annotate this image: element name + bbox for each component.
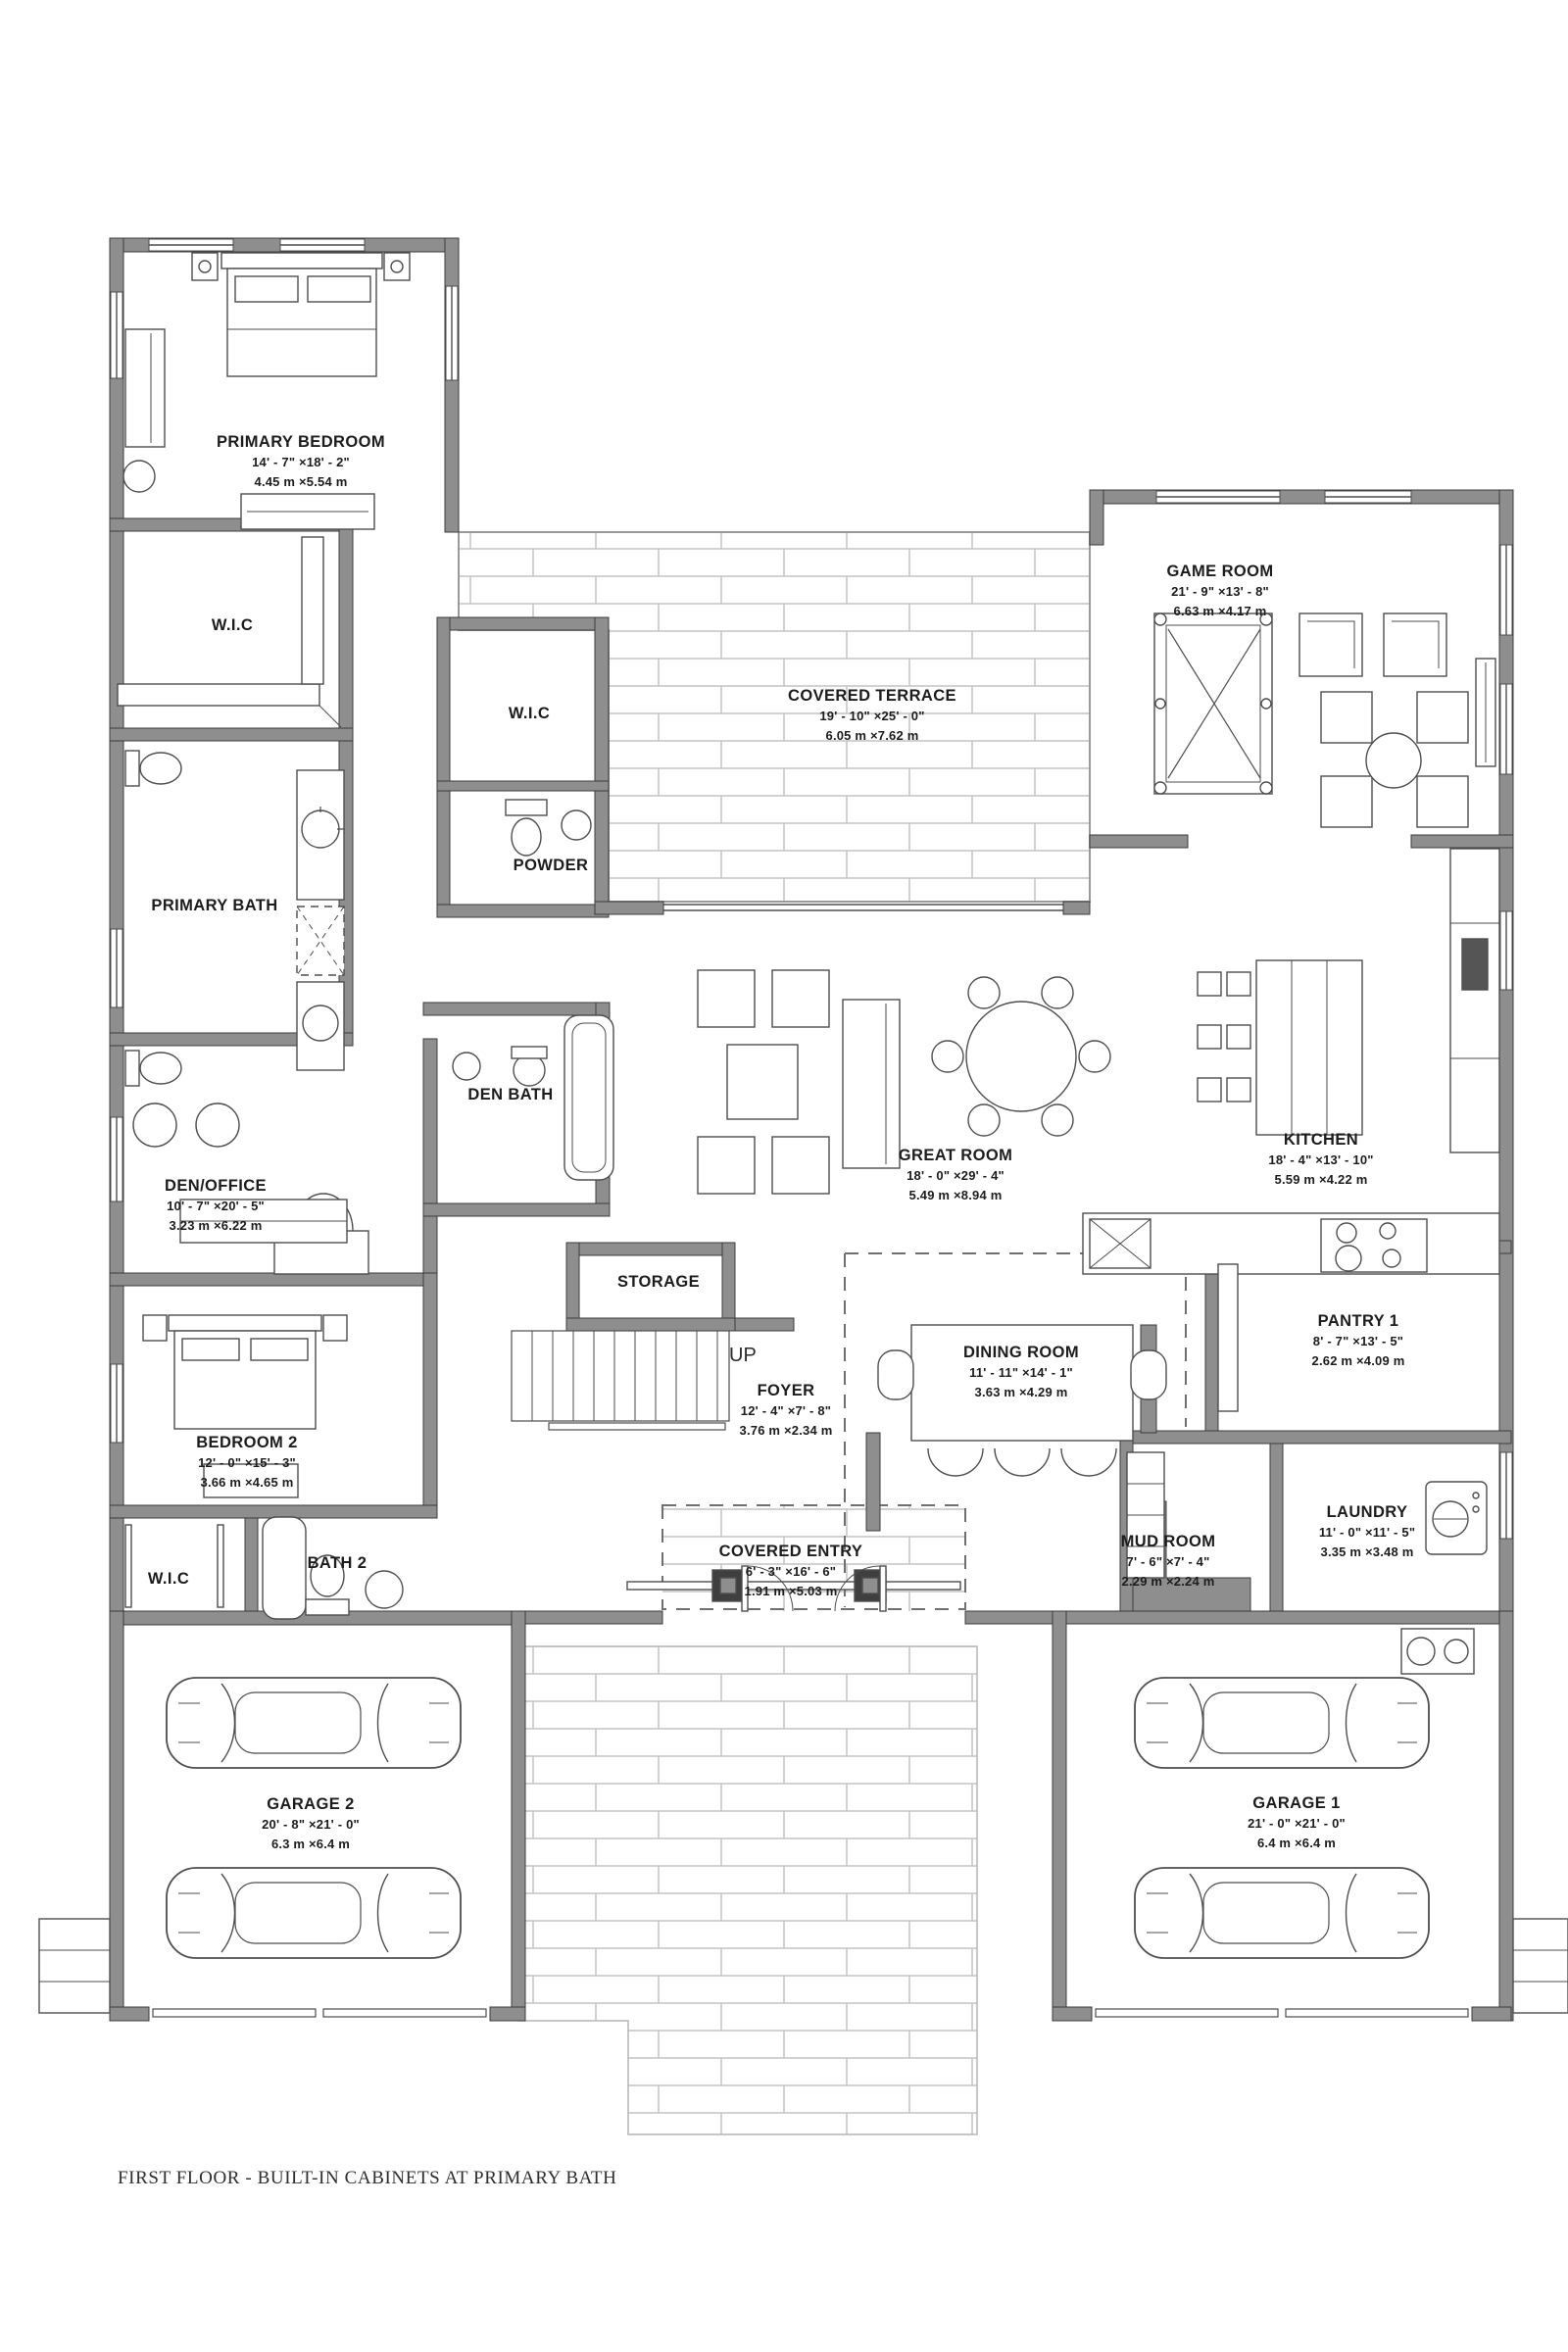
room-label-primary-bedroom: PRIMARY BEDROOM 14' - 7" ×18' - 2" 4.45 … (217, 432, 385, 492)
room-name: PANTRY 1 (1312, 1311, 1405, 1332)
room-name: GREAT ROOM (899, 1146, 1012, 1166)
room-label-wic-primary: W.I.C (212, 615, 253, 636)
room-dims-ft: 11' - 0" ×11' - 5" (1319, 1523, 1415, 1543)
room-name: GAME ROOM (1166, 562, 1273, 582)
stairs (512, 1331, 729, 1430)
room-dims-m: 4.45 m ×5.54 m (217, 472, 385, 492)
room-name: DEN/OFFICE (165, 1176, 267, 1197)
room-dims-ft: 21' - 9" ×13' - 8" (1166, 582, 1273, 602)
pool-table (1154, 613, 1272, 794)
round-table (966, 1002, 1076, 1111)
toilet-tank (125, 751, 139, 786)
toilet (512, 818, 541, 856)
room-label-storage: STORAGE (617, 1272, 700, 1293)
room-label-pantry-1: PANTRY 1 8' - 7" ×13' - 5" 2.62 m ×4.09 … (1312, 1311, 1405, 1371)
room-name: GARAGE 1 (1248, 1793, 1346, 1814)
room-dims-m: 3.23 m ×6.22 m (165, 1216, 267, 1236)
room-label-den-office: DEN/OFFICE 10' - 7" ×20' - 5" 3.23 m ×6.… (165, 1176, 267, 1236)
room-name: STORAGE (617, 1272, 700, 1293)
room-dims-m: 2.29 m ×2.24 m (1121, 1572, 1216, 1592)
room-name: MUD ROOM (1121, 1532, 1216, 1552)
room-dims-m: 1.91 m ×5.03 m (719, 1582, 863, 1601)
room-label-garage-1: GARAGE 1 21' - 0" ×21' - 0" 6.4 m ×6.4 m (1248, 1793, 1346, 1853)
room-label-primary-bath: PRIMARY BATH (151, 896, 277, 916)
room-name: BATH 2 (308, 1553, 367, 1574)
room-dims-ft: 7' - 6" ×7' - 4" (1121, 1552, 1216, 1572)
room-label-bedroom-2: BEDROOM 2 12' - 0" ×15' - 3" 3.66 m ×4.6… (196, 1433, 298, 1493)
room-name: W.I.C (148, 1569, 189, 1590)
bed-headboard (221, 253, 382, 269)
floor-plan-sheet: PRIMARY BEDROOM 14' - 7" ×18' - 2" 4.45 … (0, 0, 1568, 2352)
room-label-kitchen: KITCHEN 18' - 4" ×13' - 10" 5.59 m ×4.22… (1268, 1130, 1373, 1190)
room-dims-m: 6.3 m ×6.4 m (262, 1835, 360, 1854)
sliding-door-lines (663, 905, 1063, 910)
room-name: COVERED TERRACE (788, 686, 956, 707)
room-dims-ft: 19' - 10" ×25' - 0" (788, 707, 956, 726)
room-name: BEDROOM 2 (196, 1433, 298, 1453)
room-dims-ft: 20' - 8" ×21' - 0" (262, 1815, 360, 1835)
room-dims-m: 3.63 m ×4.29 m (963, 1383, 1079, 1402)
room-dims-m: 3.76 m ×2.34 m (740, 1421, 833, 1441)
room-dims-m: 2.62 m ×4.09 m (1312, 1351, 1405, 1371)
room-dims-ft: 6' - 3" ×16' - 6" (719, 1562, 863, 1582)
room-label-covered-entry: COVERED ENTRY 6' - 3" ×16' - 6" 1.91 m ×… (719, 1542, 863, 1601)
driveway-paving (518, 1646, 977, 2134)
room-label-wic-hall: W.I.C (509, 704, 550, 724)
room-label-laundry: LAUNDRY 11' - 0" ×11' - 5" 3.35 m ×3.48 … (1319, 1502, 1415, 1562)
room-label-bath-2: BATH 2 (308, 1553, 367, 1574)
sink (366, 1571, 403, 1608)
island (1256, 960, 1362, 1135)
room-name: POWDER (514, 856, 589, 876)
room-name: PRIMARY BEDROOM (217, 432, 385, 453)
room-label-dining-room: DINING ROOM 11' - 11" ×14' - 1" 3.63 m ×… (963, 1343, 1079, 1402)
room-name: DINING ROOM (963, 1343, 1079, 1363)
room-dims-m: 5.49 m ×8.94 m (899, 1186, 1012, 1205)
sofa (125, 329, 165, 447)
room-name: W.I.C (212, 615, 253, 636)
room-label-covered-terrace: COVERED TERRACE 19' - 10" ×25' - 0" 6.05… (788, 686, 956, 746)
room-label-wic-bedroom2: W.I.C (148, 1569, 189, 1590)
room-label-powder: POWDER (514, 856, 589, 876)
room-dims-m: 3.35 m ×3.48 m (1319, 1543, 1415, 1562)
room-name: GARAGE 2 (262, 1794, 360, 1815)
covered-terrace-paving (459, 532, 1090, 902)
sink (453, 1053, 480, 1080)
toilet (140, 753, 181, 784)
room-dims-m: 5.59 m ×4.22 m (1268, 1170, 1373, 1190)
room-dims-m: 3.66 m ×4.65 m (196, 1473, 298, 1493)
room-name: DEN BATH (467, 1085, 553, 1105)
room-dims-ft: 21' - 0" ×21' - 0" (1248, 1814, 1346, 1834)
room-dims-ft: 11' - 11" ×14' - 1" (963, 1363, 1079, 1383)
room-dims-m: 6.4 m ×6.4 m (1248, 1834, 1346, 1853)
room-label-garage-2: GARAGE 2 20' - 8" ×21' - 0" 6.3 m ×6.4 m (262, 1794, 360, 1854)
stairs-up-label: UP (729, 1345, 757, 1367)
sheet-title: FIRST FLOOR - BUILT-IN CABINETS AT PRIMA… (118, 2168, 616, 2189)
sofa (843, 1000, 900, 1168)
room-dims-m: 6.05 m ×7.62 m (788, 726, 956, 746)
counter (1450, 849, 1499, 1152)
room-label-den-bath: DEN BATH (467, 1085, 553, 1105)
room-name: LAUNDRY (1319, 1502, 1415, 1523)
room-label-foyer: FOYER 12' - 4" ×7' - 8" 3.76 m ×2.34 m (740, 1381, 833, 1441)
room-dims-ft: 14' - 7" ×18' - 2" (217, 453, 385, 472)
sink (562, 810, 591, 840)
room-dims-ft: 18' - 4" ×13' - 10" (1268, 1151, 1373, 1170)
room-dims-ft: 10' - 7" ×20' - 5" (165, 1197, 267, 1216)
room-dims-ft: 12' - 0" ×15' - 3" (196, 1453, 298, 1473)
room-dims-m: 6.63 m ×4.17 m (1166, 602, 1273, 621)
room-dims-ft: 12' - 4" ×7' - 8" (740, 1401, 833, 1421)
room-dims-ft: 8' - 7" ×13' - 5" (1312, 1332, 1405, 1351)
room-dims-ft: 18' - 0" ×29' - 4" (899, 1166, 1012, 1186)
tub (263, 1517, 306, 1619)
room-name: W.I.C (509, 704, 550, 724)
room-label-mud-room: MUD ROOM 7' - 6" ×7' - 4" 2.29 m ×2.24 m (1121, 1532, 1216, 1592)
room-label-game-room: GAME ROOM 21' - 9" ×13' - 8" 6.63 m ×4.1… (1166, 562, 1273, 621)
room-name: KITCHEN (1268, 1130, 1373, 1151)
room-name: FOYER (740, 1381, 833, 1401)
room-label-great-room: GREAT ROOM 18' - 0" ×29' - 4" 5.49 m ×8.… (899, 1146, 1012, 1205)
room-name: COVERED ENTRY (719, 1542, 863, 1562)
room-name: PRIMARY BATH (151, 896, 277, 916)
